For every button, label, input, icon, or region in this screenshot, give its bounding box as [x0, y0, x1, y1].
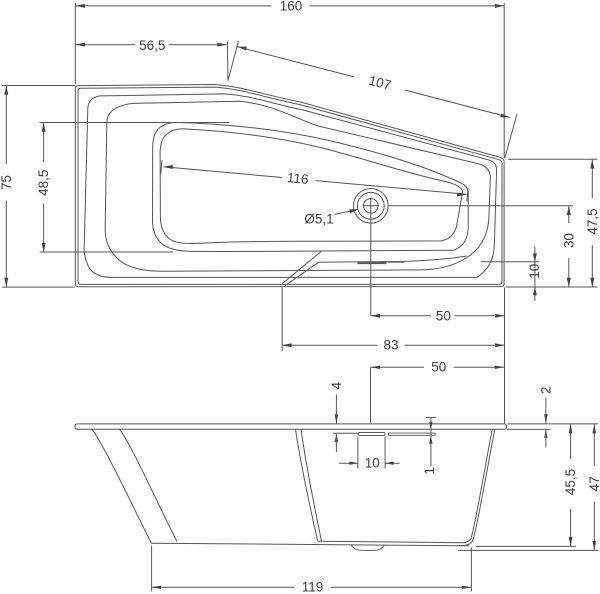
svg-text:47: 47: [587, 476, 600, 491]
svg-text:50: 50: [436, 309, 451, 324]
svg-text:48,5: 48,5: [36, 170, 51, 196]
svg-text:160: 160: [280, 0, 303, 14]
svg-text:10: 10: [527, 264, 542, 279]
svg-text:1: 1: [422, 467, 437, 475]
svg-text:45,5: 45,5: [563, 469, 578, 495]
svg-text:116: 116: [286, 170, 309, 187]
svg-text:47,5: 47,5: [585, 208, 600, 234]
svg-text:4: 4: [329, 381, 344, 389]
svg-text:119: 119: [302, 580, 324, 594]
svg-text:83: 83: [383, 338, 398, 353]
svg-text:10: 10: [365, 456, 380, 471]
svg-text:Ø5,1: Ø5,1: [304, 212, 333, 227]
svg-text:30: 30: [561, 233, 576, 248]
svg-text:56,5: 56,5: [139, 38, 165, 53]
svg-text:75: 75: [0, 175, 14, 190]
svg-text:2: 2: [538, 387, 553, 395]
svg-text:50: 50: [431, 360, 446, 375]
